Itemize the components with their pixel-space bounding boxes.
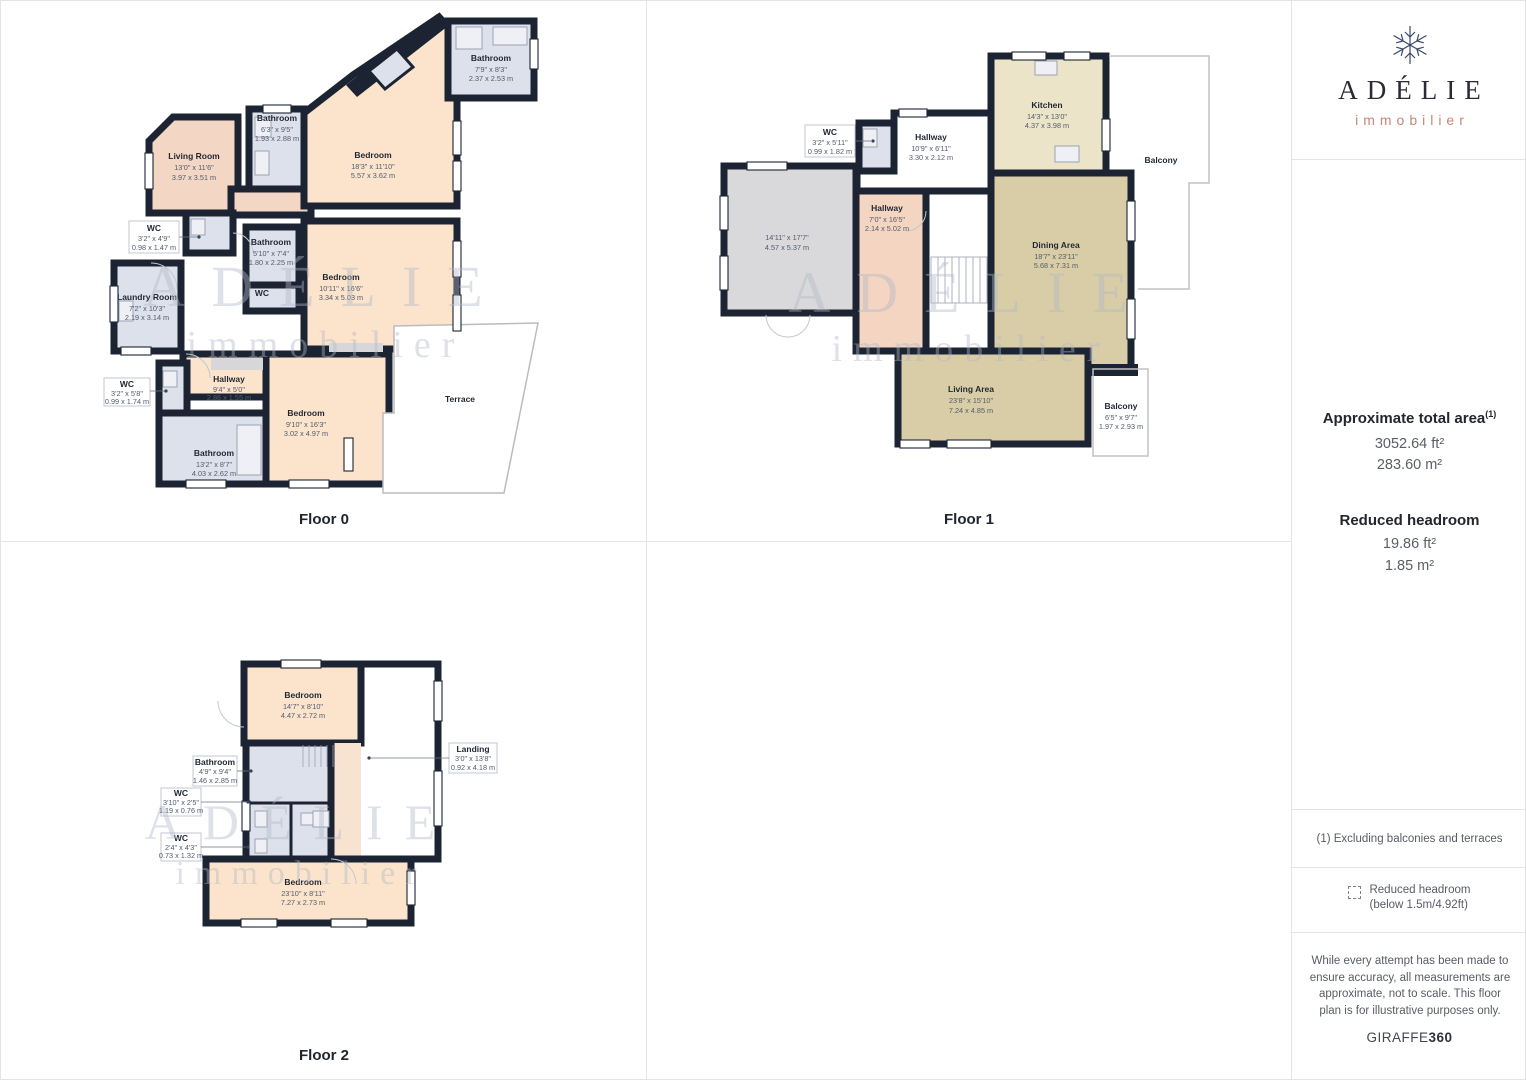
room-dim-ft: 18'7" x 23'11"	[1034, 252, 1078, 261]
room-dim-m: 2.19 x 3.14 m	[125, 313, 169, 322]
room-dim-m: 4.47 x 2.72 m	[281, 711, 325, 720]
room-dim-ft: 14'3" x 13'0"	[1027, 112, 1067, 121]
leader-dot	[871, 139, 874, 142]
total-area-ft: 3052.64 ft²	[1292, 436, 1526, 452]
room-label: Bedroom	[354, 150, 392, 160]
floor1-label: Floor 1	[647, 511, 1291, 528]
room-dim-ft: 23'8" x 15'10"	[949, 396, 993, 405]
floor1-plan: WC 3'2" x 5'11" 0.99 x 1.82 m Hallway 10…	[647, 1, 1291, 541]
room-dim-m: 0.92 x 4.18 m	[451, 763, 495, 772]
room-label: Living Area	[948, 384, 994, 394]
room-dim-m: 0.99 x 1.82 m	[808, 147, 852, 156]
room-dim-m: 4.57 x 5.37 m	[765, 243, 809, 252]
leader-dot	[249, 769, 252, 772]
room-dim-m: 2.14 x 5.02 m	[865, 224, 909, 233]
room-dim-m: 2.37 x 2.53 m	[469, 74, 513, 83]
floor2-label: Floor 2	[1, 1047, 647, 1064]
divider	[1292, 809, 1526, 810]
room-dim-ft: 3'2" x 4'9"	[138, 234, 170, 243]
room-label: Hallway	[915, 132, 947, 142]
room-dim-m: 3.97 x 3.51 m	[172, 173, 216, 182]
room-dim-m: 1.97 x 2.93 m	[1099, 422, 1143, 431]
room-label: Hallway	[213, 374, 245, 384]
total-area-title: Approximate total area(1)	[1292, 409, 1526, 427]
room-bedroom-bottom	[266, 354, 389, 484]
terrace-outline	[383, 323, 538, 493]
reduced-headroom-m: 1.85 m²	[1292, 558, 1526, 574]
room-dim-ft: 6'5" x 9'7"	[1105, 413, 1137, 422]
room-dim-m: 1.46 x 2.85 m	[193, 776, 237, 785]
footnote-ref: (1)	[1485, 409, 1496, 419]
room-dim-ft: 13'2" x 8'7"	[196, 460, 232, 469]
leader-dot	[197, 235, 200, 238]
room-label: Living Room	[168, 151, 220, 161]
floor2-plan: Bedroom 14'7" x 8'10" 4.47 x 2.72 m Land…	[1, 541, 647, 1080]
leader-dot	[164, 389, 167, 392]
room-dim-m: 5.68 x 7.31 m	[1034, 261, 1078, 270]
room-label: Bedroom	[322, 272, 360, 282]
leader-dot	[246, 845, 249, 848]
brand-name: ADÉLIE	[1292, 75, 1526, 106]
room-dim-m: 1.93 x 2.88 m	[255, 134, 299, 143]
room-label: Balcony	[1144, 155, 1177, 165]
reduced-headroom-icon	[1348, 886, 1361, 899]
divider	[1292, 867, 1526, 868]
room-label: Hallway	[871, 203, 903, 213]
stairwell	[926, 191, 991, 351]
room-dim-ft: 14'11" x 17'7"	[765, 233, 809, 242]
room-dim-m: 2.86 x 1.55 m	[207, 393, 251, 402]
wall	[1088, 364, 1138, 376]
room-dim-ft: 4'9" x 9'4"	[199, 767, 231, 776]
room-dim-ft: 9'10" x 16'3"	[286, 420, 326, 429]
legend-subtitle: (below 1.5m/4.92ft)	[1369, 899, 1467, 911]
corridor	[331, 743, 361, 859]
brand-tagline: immobilier	[1292, 112, 1526, 128]
room-label: Bathroom	[257, 113, 298, 123]
room-dim-ft: 3'2" x 5'11"	[812, 138, 848, 147]
floor0-plan: Living Room 13'0" x 11'6" 3.97 x 3.51 m …	[1, 1, 647, 541]
room-label: Bathroom	[251, 237, 292, 247]
room-dim-m: 7.27 x 2.73 m	[281, 898, 325, 907]
room-dim-m: 5.57 x 3.62 m	[351, 171, 395, 180]
wall	[361, 664, 438, 859]
floor0-label: Floor 0	[1, 511, 647, 528]
room-dim-m: 0.98 x 1.47 m	[132, 243, 176, 252]
giraffe360-logo: GIRAFFE360	[1292, 1030, 1526, 1045]
room-dim-ft: 7'9" x 8'3"	[475, 65, 507, 74]
leader-dot	[367, 756, 370, 759]
brand-logo	[1292, 23, 1526, 72]
snowflake-icon	[1388, 23, 1432, 67]
room-dim-ft: 6'3" x 9'5"	[261, 125, 293, 134]
room-label: Kitchen	[1031, 100, 1062, 110]
room-label: Bedroom	[284, 690, 322, 700]
room-dim-ft: 10'9" x 6'11"	[911, 144, 951, 153]
room-label: Landing	[456, 744, 489, 754]
room-label: Bedroom	[287, 408, 325, 418]
room-dim-m: 1.19 x 0.76 m	[159, 806, 203, 815]
room-dim-m: 4.37 x 3.98 m	[1025, 121, 1069, 130]
room-dim-m: 3.34 x 5.03 m	[319, 293, 363, 302]
leader-dot	[246, 800, 249, 803]
room-dim-ft: 13'0" x 11'6"	[174, 163, 214, 172]
divider	[1292, 159, 1526, 160]
room-label: WC	[120, 379, 134, 389]
room-label: WC	[823, 127, 837, 137]
total-area-title-text: Approximate total area	[1323, 410, 1486, 427]
closet-recess	[211, 358, 263, 370]
room-dim-ft: 14'7" x 8'10"	[283, 702, 323, 711]
room-label: Bathroom	[471, 53, 512, 63]
room-dim-ft: 5'10" x 7'4"	[253, 249, 289, 258]
legend: Reduced headroom (below 1.5m/4.92ft)	[1292, 883, 1526, 913]
room-dim-ft: 10'11" x 16'6"	[319, 284, 363, 293]
room-dim-ft: 18'3" x 11'10"	[351, 162, 395, 171]
sidebar: ADÉLIE immobilier Approximate total area…	[1291, 1, 1526, 1080]
disclaimer: While every attempt has been made to ens…	[1307, 953, 1513, 1020]
reduced-headroom-title: Reduced headroom	[1292, 512, 1526, 529]
room-label: Terrace	[445, 394, 475, 404]
room-label: Dining Area	[1032, 240, 1080, 250]
legend-title: Reduced headroom	[1369, 884, 1470, 896]
room-label: WC	[147, 223, 161, 233]
footnote: (1) Excluding balconies and terraces	[1292, 833, 1526, 845]
room-label: Bathroom	[194, 448, 235, 458]
room-dim-m: 3.02 x 4.97 m	[284, 429, 328, 438]
room-label: Balcony	[1104, 401, 1137, 411]
room-label: WC	[255, 288, 269, 298]
room-dim-ft: 3'0" x 13'8"	[455, 754, 491, 763]
giraffe-text: GIRAFFE	[1366, 1030, 1428, 1045]
room-label: Laundry Room	[117, 292, 177, 302]
room-label: Bedroom	[284, 877, 322, 887]
room-label: Bathroom	[195, 757, 236, 767]
room-label: WC	[174, 833, 188, 843]
room-dim-m: 0.73 x 1.32 m	[159, 851, 203, 860]
total-area-m: 283.60 m²	[1292, 457, 1526, 473]
reduced-headroom-ft: 19.86 ft²	[1292, 536, 1526, 552]
room-dim-ft: 23'10" x 8'11"	[281, 889, 325, 898]
room-label: WC	[174, 788, 188, 798]
floorplan-sheet: Living Room 13'0" x 11'6" 3.97 x 3.51 m …	[0, 0, 1526, 1080]
divider	[1292, 932, 1526, 933]
room-dim-m: 1.80 x 2.25 m	[249, 258, 293, 267]
corridor	[231, 189, 311, 215]
room-dim-m: 7.24 x 4.85 m	[949, 406, 993, 415]
room-dim-ft: 7'2" x 10'3"	[129, 304, 165, 313]
room-dim-ft: 7'0" x 16'5"	[869, 215, 905, 224]
room-dim-m: 3.30 x 2.12 m	[909, 153, 953, 162]
giraffe-360: 360	[1428, 1030, 1452, 1045]
room-dim-m: 4.03 x 2.62 m	[192, 469, 236, 478]
room-dim-m: 0.99 x 1.74 m	[105, 397, 149, 406]
closet-recess	[329, 343, 383, 352]
